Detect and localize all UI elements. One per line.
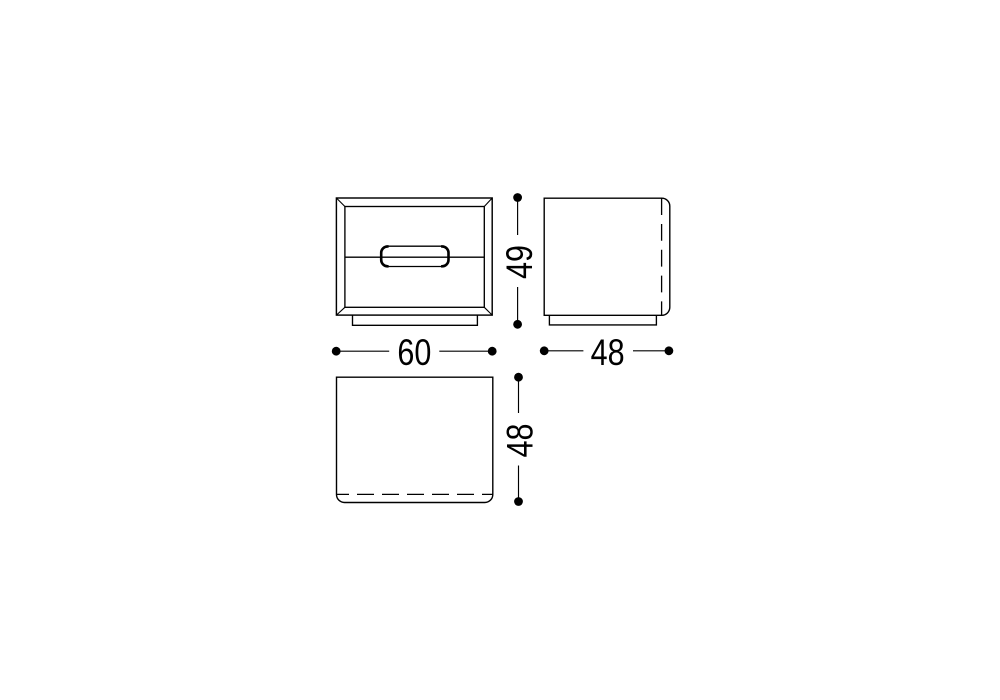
svg-text:48: 48 (591, 332, 625, 373)
svg-text:48: 48 (500, 424, 541, 458)
svg-text:49: 49 (500, 245, 541, 279)
svg-text:60: 60 (397, 333, 431, 374)
